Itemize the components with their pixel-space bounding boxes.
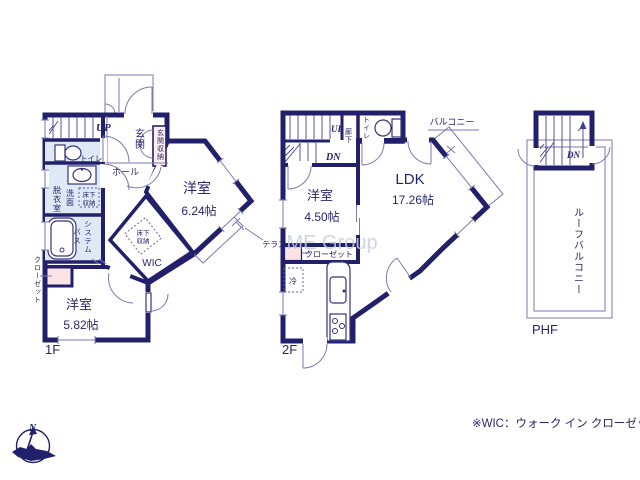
window	[41, 120, 49, 138]
floor-phf: DN ルーフバルコニー PHF	[518, 113, 612, 337]
floor-plan-page: UP 玄関 玄関収納 ホール トイレ 脱衣室 洗面 床下 収納 システム バス …	[0, 0, 640, 480]
compass: N	[12, 423, 56, 463]
stairs-up-label-2f: UP	[331, 124, 343, 134]
window	[219, 208, 243, 232]
footnote: ※WIC：ウォーク イン クローゼット	[472, 417, 640, 430]
door-balcony	[407, 136, 431, 164]
hall-label: ホール	[112, 167, 139, 177]
roof-balcony-inner	[534, 147, 605, 311]
entrance-label: 玄関	[133, 127, 145, 150]
stairs-up-label: UP	[96, 122, 111, 134]
wic-underfloor-label-2: 収納	[137, 236, 150, 245]
ldk-size: 17.26帖	[392, 192, 434, 207]
compass-north-label: N	[28, 423, 37, 434]
system-bath-label-2: バス	[72, 228, 81, 245]
window	[217, 158, 239, 184]
room-624-name: 洋室	[183, 180, 211, 196]
corridor-label: 廊下	[345, 127, 353, 144]
floor-1f: UP 玄関 玄関収納 ホール トイレ 脱衣室 洗面 床下 収納 システム バス …	[34, 75, 286, 357]
window	[279, 200, 287, 228]
stove-icon	[330, 314, 346, 340]
stairs-down-label-2f: DN	[325, 152, 341, 163]
balcony-label: バルコニー	[430, 117, 475, 127]
wash-label: 洗面	[66, 188, 75, 207]
watermark: ME Group	[286, 232, 377, 254]
floor-1f-label: 1F	[45, 342, 60, 357]
ldk-name: LDK	[395, 171, 424, 188]
system-bath-label-1: システム	[84, 220, 93, 254]
underfloor-storage-label-1: 床下	[83, 190, 97, 199]
2f-outer-wall	[283, 113, 487, 341]
dressing-room-label: 脱衣室	[53, 185, 62, 213]
window	[454, 217, 476, 238]
toilet-label-2f: トイレ	[363, 116, 371, 140]
window	[58, 336, 95, 344]
toilet-label-1f: トイレ	[80, 154, 103, 163]
room-450-size: 4.50帖	[304, 209, 339, 224]
wic-label: WIC	[142, 258, 161, 269]
door-phf-left	[518, 148, 540, 166]
window	[41, 222, 49, 250]
door-ldk-terrace	[386, 258, 411, 296]
fridge-label: 冷	[289, 276, 297, 286]
door-phf-right	[588, 146, 610, 164]
room-582-name: 洋室	[66, 297, 92, 312]
floor-phf-label: PHF	[532, 322, 558, 337]
roof-balcony-label: ルーフバルコニー	[572, 207, 584, 295]
arrow-head	[580, 121, 587, 129]
door-2f-bottom	[303, 337, 327, 368]
porch-step-arc	[105, 104, 115, 113]
closet-label-1f: クローゼット	[34, 256, 42, 304]
room-582-size: 5.82帖	[63, 317, 98, 332]
staircase-1f	[47, 116, 93, 138]
room-450-name: 洋室	[307, 188, 333, 203]
floor-2f-label: 2F	[282, 342, 297, 357]
door-exterior-582	[144, 292, 168, 313]
door-room450	[288, 161, 312, 189]
front-door	[124, 87, 153, 119]
stairs-down-label-phf: DN	[566, 150, 580, 160]
entrance-storage-label: 玄関収納	[157, 128, 165, 161]
wic-underfloor-label-1: 床下	[137, 228, 151, 237]
staircase-2f	[285, 115, 330, 163]
kitchen-counter	[327, 262, 350, 341]
door-toilet-1f	[100, 136, 129, 162]
sink-icon	[68, 166, 96, 184]
window	[279, 292, 287, 315]
window	[41, 170, 49, 188]
door-toilet-2f	[362, 138, 384, 165]
window	[443, 154, 474, 190]
sliding-door	[354, 205, 362, 235]
room-624-size: 6.24帖	[181, 203, 216, 218]
toilet-icon	[55, 145, 81, 161]
floor-plan-canvas: UP 玄関 玄関収納 ホール トイレ 脱衣室 洗面 床下 収納 システム バス …	[0, 0, 640, 480]
door-room582	[108, 265, 133, 303]
balcony	[428, 127, 503, 207]
toilet-icon	[375, 119, 401, 137]
underfloor-storage-label-2: 収納	[83, 198, 96, 207]
porch	[105, 75, 153, 113]
